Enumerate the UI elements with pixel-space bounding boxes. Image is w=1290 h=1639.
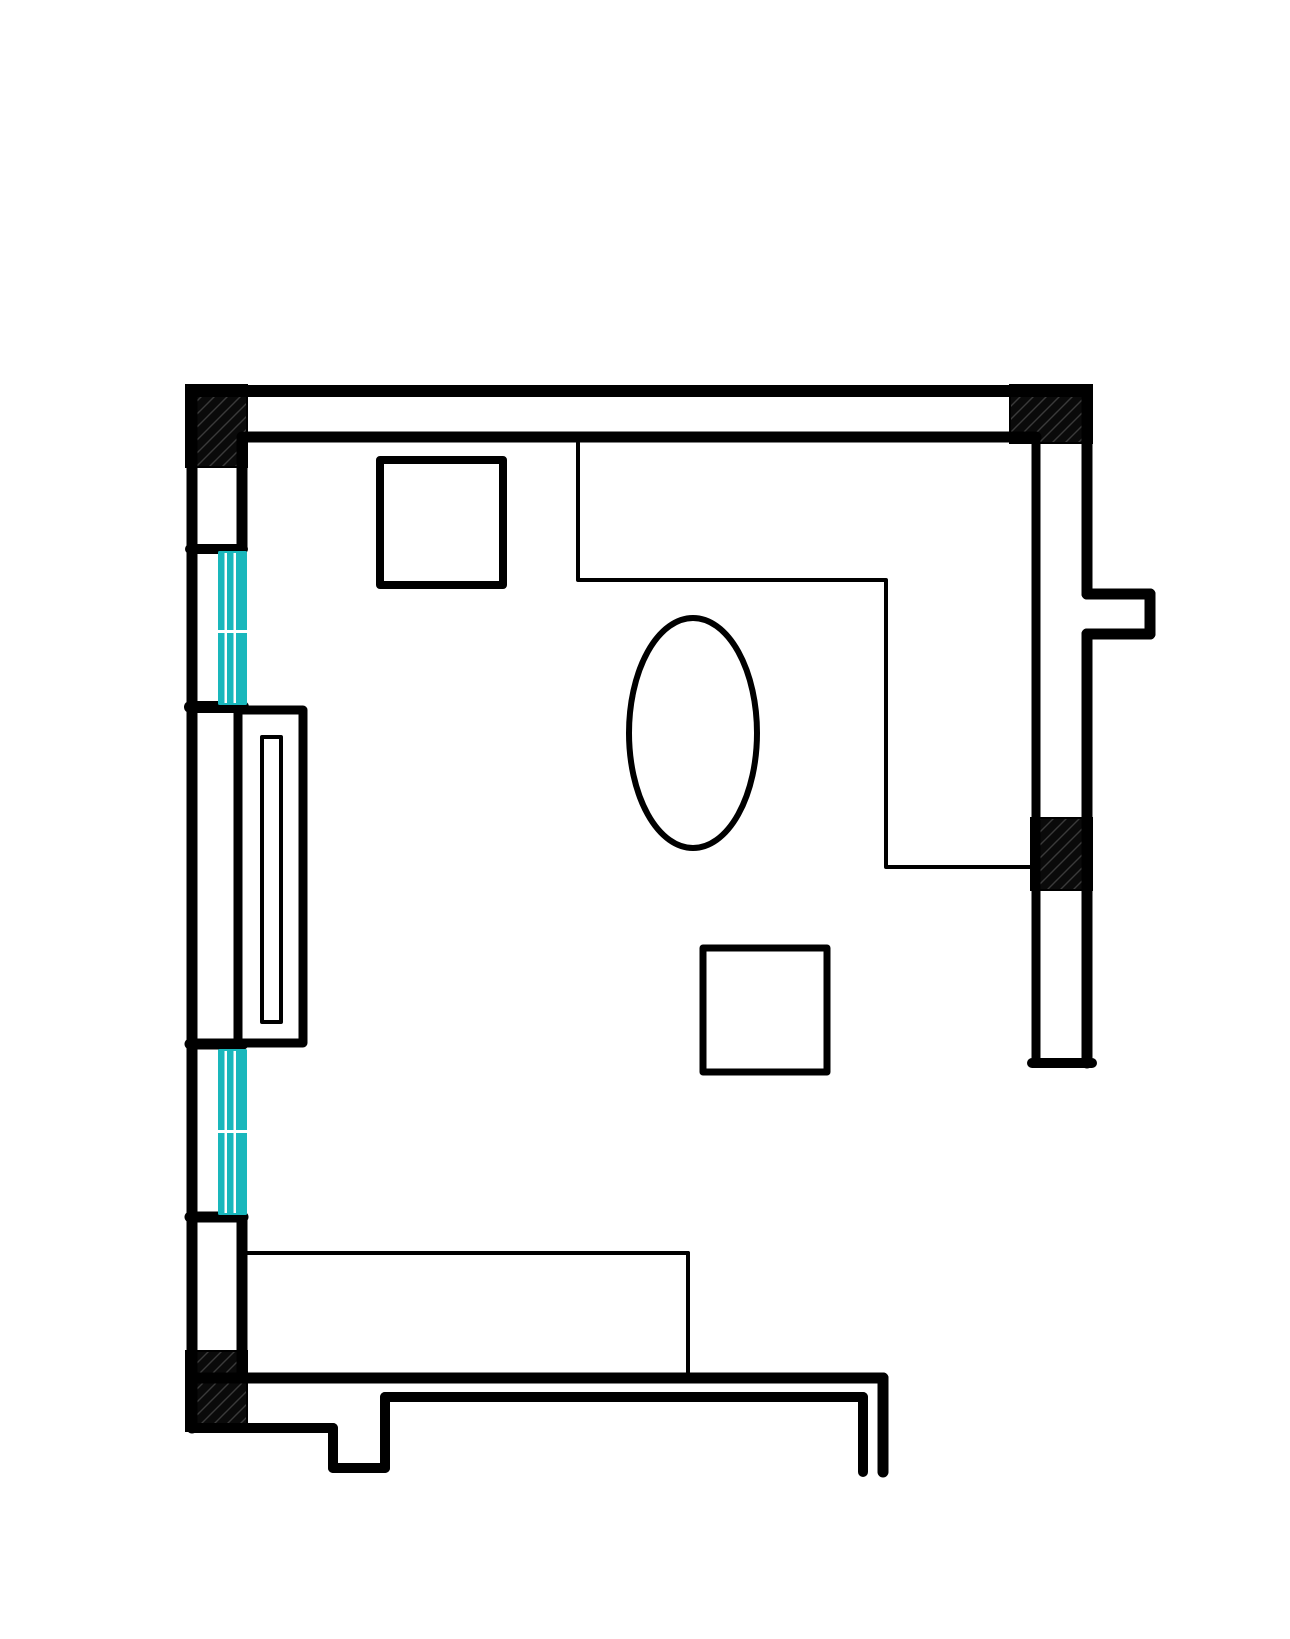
window-1-mullion-2 [234, 553, 237, 703]
floor-plan [0, 0, 1290, 1639]
window-1 [218, 551, 247, 705]
window-2-seam [218, 1130, 247, 1133]
window-1-seam [218, 630, 247, 633]
square-table-center [703, 948, 827, 1072]
oval-table [629, 618, 757, 848]
window-2 [218, 1049, 247, 1215]
floor-plan-svg [0, 0, 1290, 1639]
window-1-mullion-1 [225, 553, 228, 703]
square-table-top-left [380, 460, 503, 585]
wall-cabinet-slot [262, 737, 281, 1022]
